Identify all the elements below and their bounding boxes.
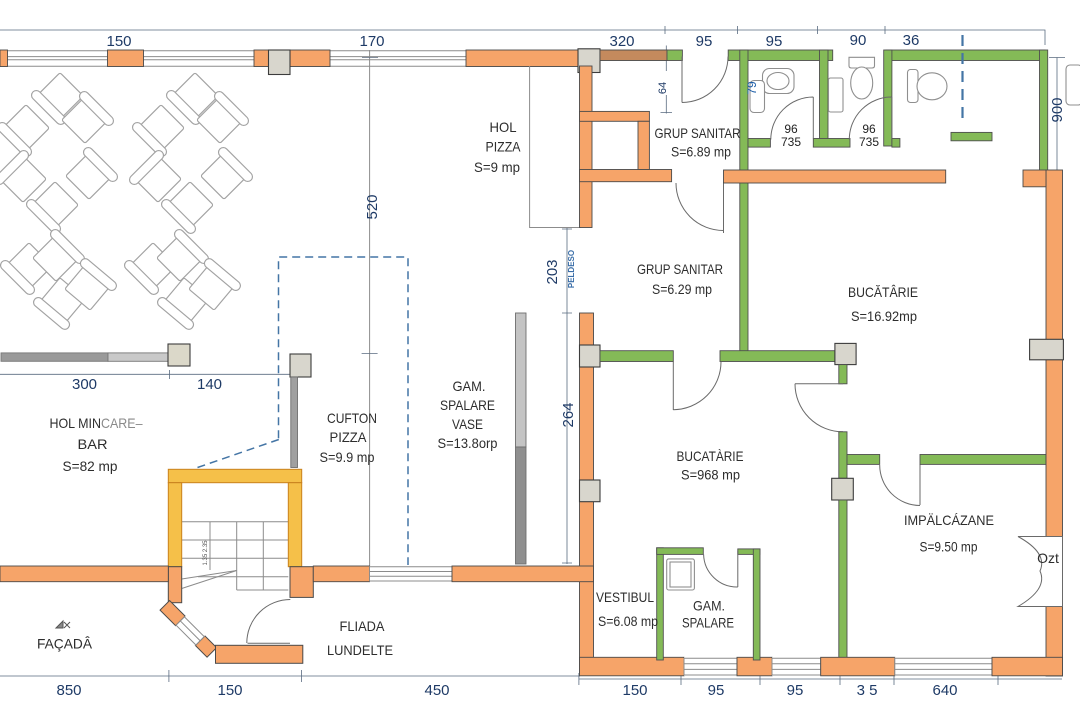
svg-text:95: 95 (766, 33, 783, 50)
svg-text:90: 90 (850, 32, 867, 49)
svg-text:PELDESO: PELDESO (567, 250, 576, 288)
svg-text:BUCATÀRIE: BUCATÀRIE (677, 448, 744, 464)
svg-text:FAÇADÂ: FAÇADÂ (37, 636, 93, 652)
svg-text:GAM.: GAM. (453, 378, 486, 394)
svg-text:Ozt: Ozt (1037, 550, 1059, 566)
svg-text:735: 735 (859, 135, 879, 149)
svg-text:150: 150 (622, 682, 647, 699)
svg-text:S=6.89 mp: S=6.89 mp (671, 144, 731, 160)
svg-text:300: 300 (72, 376, 97, 393)
svg-text:GAM.: GAM. (693, 598, 725, 614)
svg-text:CUFTON: CUFTON (327, 410, 377, 426)
svg-text:S=9.50 mp: S=9.50 mp (920, 539, 978, 555)
svg-text:BUCĂTÂRIE: BUCĂTÂRIE (848, 284, 918, 300)
svg-text:PIZZA: PIZZA (486, 139, 522, 155)
svg-text:203: 203 (544, 259, 561, 284)
svg-text:VASE: VASE (452, 416, 483, 432)
svg-text:1.35 2.35: 1.35 2.35 (203, 540, 209, 566)
svg-text:S=9.9 mp: S=9.9 mp (320, 449, 375, 465)
svg-text:900: 900 (1049, 97, 1066, 122)
svg-text:S=13.8orp: S=13.8orp (438, 435, 498, 451)
svg-text:HOL MINCARE–: HOL MINCARE– (50, 415, 143, 431)
svg-text:264: 264 (560, 402, 577, 427)
svg-text:GRUP SANITAR: GRUP SANITAR (655, 125, 741, 141)
svg-text:SPALARE: SPALARE (440, 397, 495, 413)
svg-text:150: 150 (217, 682, 242, 699)
svg-text:735: 735 (781, 135, 801, 149)
svg-text:GRUP SANITAR: GRUP SANITAR (637, 261, 723, 277)
svg-text:S=6.29 mp: S=6.29 mp (652, 281, 712, 297)
svg-text:3 5: 3 5 (857, 682, 878, 699)
svg-text:150: 150 (106, 33, 131, 50)
svg-text:95: 95 (708, 682, 725, 699)
svg-text:S=82 mp: S=82 mp (63, 458, 118, 474)
svg-text:VESTIBUL: VESTIBUL (596, 589, 654, 605)
svg-text:95: 95 (787, 682, 804, 699)
svg-text:96: 96 (784, 122, 798, 136)
svg-text:95: 95 (696, 33, 713, 50)
svg-text:HOL: HOL (490, 119, 517, 135)
svg-text:320: 320 (609, 33, 634, 50)
svg-text:IMPÄLCÁZANE: IMPÄLCÁZANE (904, 512, 994, 528)
svg-text:79: 79 (745, 81, 759, 95)
svg-text:S=6.08 mp: S=6.08 mp (598, 613, 658, 629)
svg-text:S=16.92mp: S=16.92mp (851, 308, 917, 324)
svg-text:SPALARE: SPALARE (682, 615, 734, 631)
svg-text:96: 96 (862, 122, 876, 136)
svg-text:850: 850 (56, 682, 81, 699)
svg-text:520: 520 (364, 194, 381, 219)
svg-text:170: 170 (359, 33, 384, 50)
svg-text:S=968 mp: S=968 mp (681, 467, 740, 483)
svg-text:S=9 mp: S=9 mp (474, 159, 520, 175)
svg-text:450: 450 (424, 682, 449, 699)
svg-text:640: 640 (932, 682, 957, 699)
svg-text:LUNDELTE: LUNDELTE (327, 642, 393, 658)
svg-text:64: 64 (657, 82, 669, 94)
svg-text:140: 140 (197, 376, 222, 393)
svg-text:BAR: BAR (78, 436, 108, 452)
svg-text:PIZZA: PIZZA (330, 429, 368, 445)
svg-text:36: 36 (903, 32, 920, 49)
svg-text:FLIADA: FLIADA (340, 618, 386, 634)
